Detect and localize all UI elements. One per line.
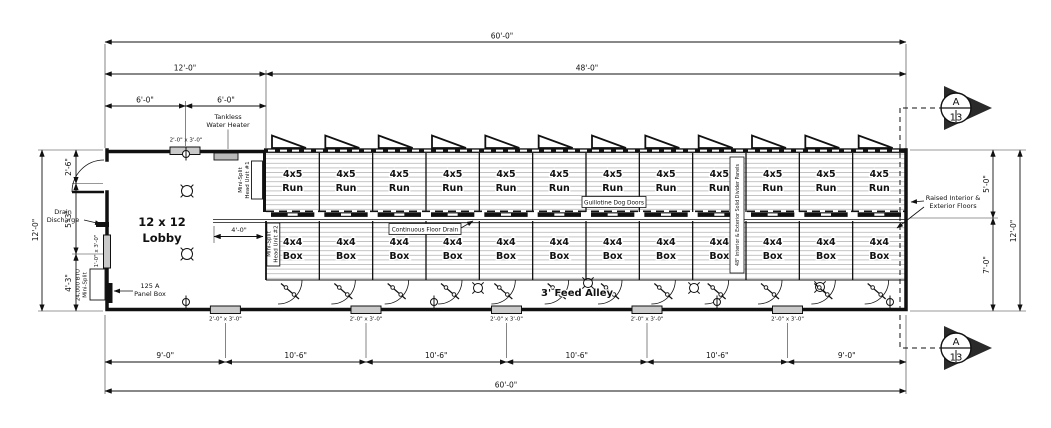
box-cell-label: Box: [389, 251, 409, 262]
svg-text:Discharge: Discharge: [47, 216, 80, 224]
lobby-west-window-label: 1'-0" x 3'-0": [94, 235, 100, 268]
outlet-icon: [431, 296, 438, 309]
dim-bottom-segment: 10'-6": [565, 351, 588, 360]
south-window: [351, 306, 381, 314]
run-gate-swing-icon: [325, 136, 359, 149]
floor-plan-canvas: 4x5Run4x5Run4x5Run4x5Run4x5Run4x5Run4x5R…: [0, 0, 1051, 428]
entry-door: [72, 160, 104, 192]
guillotine-dog-doors-note: Guillotine Dog Doors: [582, 197, 646, 208]
south-window: [632, 306, 662, 314]
outlet-icon: [714, 296, 721, 309]
outdoor-run-gates: [272, 136, 893, 149]
svg-text:13: 13: [950, 353, 963, 364]
lobby-west-window: [104, 235, 111, 268]
dim-bottom-segment: 10'-6": [425, 351, 448, 360]
dim-left-lower: 4'-3": [64, 274, 73, 292]
south-window-label: 2'-0" x 3'-0": [771, 317, 804, 323]
svg-text:Mini-Split: Mini-Split: [238, 166, 244, 192]
run-gate-swing-icon: [699, 136, 733, 149]
run-cell-label: Run: [816, 183, 837, 194]
run-gate-swing-icon: [272, 136, 306, 149]
btu-mini-split-note: 24,000 BTU Mini-Split: [76, 269, 106, 301]
run-cell-label: 4x5: [710, 169, 729, 180]
run-gate-swing-icon: [645, 136, 679, 149]
dim-top-lobby-right: 6'-0": [217, 96, 235, 105]
section-marker-top: A 13: [941, 86, 992, 130]
svg-text:Raised Interior &: Raised Interior &: [926, 194, 981, 202]
dim-left-upper: 2'-6": [64, 158, 73, 176]
svg-text:Mini-Split: Mini-Split: [267, 230, 273, 256]
dim-top-lobby: 12'-0": [174, 64, 197, 73]
drain-discharge-note: Drain Discharge: [47, 208, 109, 227]
south-window: [492, 306, 522, 314]
run-cell-label: Run: [336, 183, 357, 194]
svg-text:Head Unit #1: Head Unit #1: [245, 161, 251, 198]
box-cell-label: Box: [709, 251, 729, 262]
bottom-overall-dimension: 60'-0": [105, 381, 906, 392]
run-gate-swing-icon: [592, 136, 626, 149]
box-cell-label: 4x4: [550, 237, 570, 248]
lobby-north-window-label: 2'-0" x 3'-0": [170, 138, 203, 144]
run-cell-label: Run: [389, 183, 410, 194]
box-cell-label: Box: [869, 251, 889, 262]
section-marker-bottom: A 13: [941, 326, 992, 370]
drain-discharge-pipe: [96, 222, 109, 227]
svg-text:Head Unit #2: Head Unit #2: [274, 225, 280, 262]
dim-right-lower: 7'-0": [982, 256, 991, 274]
ceiling-light-icon: [688, 282, 699, 293]
box-cell-label: 4x4: [336, 237, 356, 248]
dim-bottom-segment: 9'-0": [156, 351, 174, 360]
south-window: [773, 306, 803, 314]
run-cell-label: Run: [869, 183, 890, 194]
run-cell-label: Run: [549, 183, 570, 194]
svg-text:125 A: 125 A: [141, 282, 160, 290]
box-cell-label: 4x4: [496, 237, 516, 248]
right-dimensions: 5'-0" 7'-0" 12'-0": [982, 150, 1020, 311]
svg-text:Panel Box: Panel Box: [134, 290, 166, 298]
box-cell-label: Box: [763, 251, 783, 262]
run-gate-swing-icon: [432, 136, 466, 149]
run-cell-label: Run: [656, 183, 677, 194]
run-gate-swing-icon: [379, 136, 413, 149]
run-cell-label: 4x5: [496, 169, 515, 180]
svg-text:Guillotine Dog Doors: Guillotine Dog Doors: [584, 200, 644, 206]
run-gate-swing-icon: [859, 136, 893, 149]
dim-top-lobby-left: 6'-0": [136, 96, 154, 105]
svg-text:24,000 BTU: 24,000 BTU: [76, 269, 82, 301]
svg-text:Water Heater: Water Heater: [206, 121, 250, 129]
dim-right-upper: 5'-0": [982, 175, 991, 193]
run-cell-label: Run: [709, 183, 730, 194]
run-cell-label: Run: [762, 183, 783, 194]
guillotine-door-bars: [271, 212, 901, 217]
dim-left-overall: 12'-0": [31, 219, 40, 242]
ceiling-light-icon: [181, 185, 194, 198]
run-gate-swing-icon: [805, 136, 839, 149]
outlet-icon: [887, 296, 894, 309]
svg-text:Exterior Floors: Exterior Floors: [929, 202, 977, 210]
box-cell-label: 4x4: [283, 237, 303, 248]
ceiling-light-icon: [181, 248, 194, 261]
dim-top-overall: 60'-0": [491, 32, 514, 41]
svg-text:A: A: [953, 97, 960, 108]
box-cell-label: 4x4: [710, 237, 730, 248]
box-cell-label: 4x4: [763, 237, 783, 248]
run-cell-label: 4x5: [656, 169, 675, 180]
mini-split-head-unit-1: Mini-Split Head Unit #1: [238, 161, 263, 199]
top-dimensions: 60'-0" 12'-0" 48'-0" 6'-0" 6'-0": [105, 32, 906, 107]
svg-text:48" Interior & Exterior Solid: 48" Interior & Exterior Solid Divider Pa…: [735, 164, 741, 266]
south-window-label: 2'-0" x 3'-0": [490, 317, 523, 323]
run-cell-label: 4x5: [283, 169, 302, 180]
run-cell-label: 4x5: [603, 169, 622, 180]
box-cell-label: Box: [603, 251, 623, 262]
box-cell-label: Box: [443, 251, 463, 262]
box-cell-label: 4x4: [443, 237, 463, 248]
left-dimensions: 12'-0" 2'-6" 5'-3" 4'-3": [31, 150, 76, 311]
water-heater-unit: [214, 153, 238, 160]
run-cell-label: 4x5: [550, 169, 569, 180]
svg-text:A: A: [953, 337, 960, 348]
south-window: [210, 306, 240, 314]
svg-text:13: 13: [950, 113, 963, 124]
box-cell-label: 4x4: [390, 237, 410, 248]
dim-right-overall: 12'-0": [1009, 220, 1018, 243]
floor-plan-svg: 4x5Run4x5Run4x5Run4x5Run4x5Run4x5Run4x5R…: [0, 0, 1051, 428]
run-cell-label: Run: [602, 183, 623, 194]
run-cell-label: Run: [442, 183, 463, 194]
box-cell-label: Box: [816, 251, 836, 262]
dim-bottom-overall: 60'-0": [495, 381, 518, 390]
dim-top-kennel: 48'-0": [576, 64, 599, 73]
box-cell-label: 4x4: [816, 237, 836, 248]
box-cell-label: Box: [656, 251, 676, 262]
south-window-label: 2'-0" x 3'-0": [631, 317, 664, 323]
box-cell-label: Box: [336, 251, 356, 262]
box-cell-label: 4x4: [656, 237, 676, 248]
dim-lobby-drain: 4'-0": [231, 226, 246, 234]
electrical-panel: [108, 283, 113, 303]
run-cell-label: Run: [282, 183, 303, 194]
run-cell-label: 4x5: [870, 169, 889, 180]
box-cell-label: Box: [496, 251, 516, 262]
svg-text:Tankless: Tankless: [213, 113, 242, 121]
svg-text:Drain: Drain: [54, 208, 72, 216]
run-cell-label: 4x5: [336, 169, 355, 180]
divider-panels-note: 48" Interior & Exterior Solid Divider Pa…: [730, 157, 744, 273]
south-window-label: 2'-0" x 3'-0": [209, 317, 242, 323]
mini-split-head-unit-2: Mini-Split Head Unit #2: [267, 223, 280, 266]
box-cell-label: 4x4: [870, 237, 890, 248]
dim-bottom-segment: 10'-6": [706, 351, 729, 360]
run-cell-label: 4x5: [816, 169, 835, 180]
run-cell-label: Run: [496, 183, 517, 194]
run-cell-label: 4x5: [763, 169, 782, 180]
run-gate-swing-icon: [539, 136, 573, 149]
outlet-icon: [183, 296, 190, 309]
box-cell-label: Box: [549, 251, 569, 262]
svg-text:Mini-Split: Mini-Split: [83, 271, 89, 297]
box-cell-label: Box: [283, 251, 303, 262]
lobby-label-line1: 12 x 12: [138, 215, 185, 229]
run-cell-label: 4x5: [390, 169, 409, 180]
run-gate-swing-icon: [485, 136, 519, 149]
south-window-label: 2'-0" x 3'-0": [350, 317, 383, 323]
extension-lines: [38, 44, 1026, 394]
lobby-label-line2: Lobby: [142, 231, 182, 245]
dim-bottom-segment: 10'-6": [284, 351, 307, 360]
run-gate-swing-icon: [752, 136, 786, 149]
run-cell-label: 4x5: [443, 169, 462, 180]
ceiling-light-icon: [472, 282, 483, 293]
lobby-drain-dimension: 4'-0": [214, 226, 263, 243]
dim-bottom-segment: 9'-0": [838, 351, 856, 360]
box-cell-label: 4x4: [603, 237, 623, 248]
svg-text:Continuous Floor Drain: Continuous Floor Drain: [392, 228, 459, 234]
panel-box-note: 125 A Panel Box: [108, 282, 166, 303]
raised-floors-note: Raised Interior & Exterior Floors: [897, 194, 980, 228]
feed-alley-label: 3' Feed Alley: [541, 288, 614, 299]
